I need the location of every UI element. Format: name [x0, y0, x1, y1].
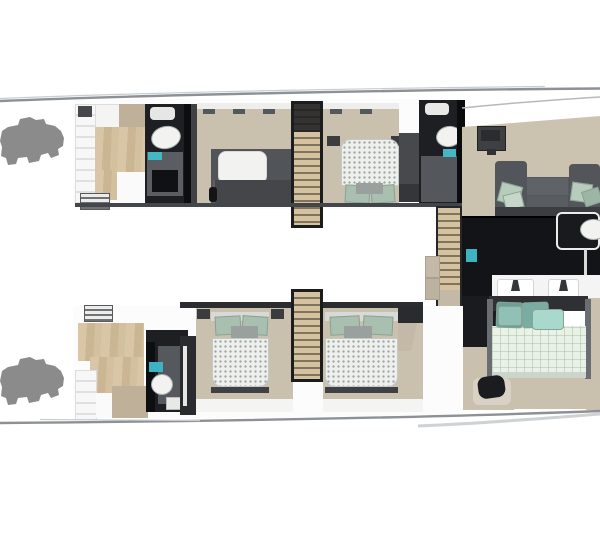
port-vip-bed-mattress: [341, 139, 399, 186]
stbd-aft-hatch-ladder: [84, 305, 113, 322]
port-hull-inner-edge: [75, 203, 463, 207]
master-bed-duvet: [492, 326, 586, 376]
port-guest-settee-cushions: [213, 180, 291, 204]
master-pillow: [532, 309, 564, 330]
port-wardrobe: [399, 133, 420, 202]
port-aft-hatch-ladder: [80, 193, 110, 210]
teal-basin-icon: [149, 362, 163, 372]
folded-blanket: [344, 326, 372, 338]
jetski-silhouette-starboard: [0, 355, 66, 409]
table-pedestal: [584, 249, 587, 277]
master-pillow: [498, 306, 522, 326]
teal-basin-icon: [148, 152, 162, 160]
bottom-rail-lines: [0, 405, 600, 435]
port-aft-bathroom-cabinet: [152, 170, 178, 192]
side-table: [425, 278, 440, 300]
tv-console-inner: [481, 130, 500, 141]
port-aft-cabin-white-area: [117, 172, 147, 202]
folded-blanket: [356, 183, 383, 194]
stbd-aft-cabin-wood-floor: [78, 323, 144, 361]
stbd-bed1-platform: [211, 387, 269, 393]
jetski-silhouette-port: [0, 115, 66, 169]
port-aft-bathroom-wall: [184, 104, 191, 207]
sofa-cushion: [527, 178, 570, 195]
master-bed-footband: [492, 372, 586, 378]
teal-appliance: [466, 249, 477, 262]
nightstand-icon: [197, 309, 210, 319]
lamp-icon: [209, 187, 217, 202]
stbd-bed2-platform: [325, 387, 398, 393]
side-table: [425, 256, 440, 278]
stbd-wardrobe: [398, 306, 423, 323]
stbd-bed1-mattress: [212, 338, 269, 387]
table-oval-top: [580, 219, 600, 240]
folded-blanket: [231, 326, 258, 338]
top-rail-lines: [0, 80, 600, 114]
toilet-icon: [151, 374, 173, 395]
floor-plan-canvas: [0, 0, 600, 540]
nightstand-icon: [271, 309, 284, 319]
teal-basin-icon: [443, 149, 456, 157]
port-fwd-bathroom-floor: [421, 156, 459, 202]
stbd-staircase: [291, 289, 323, 382]
tv-bracket: [487, 149, 496, 155]
stbd-closet-door: [183, 346, 187, 406]
stbd-bed2-mattress: [325, 338, 398, 387]
nightstand-icon: [327, 136, 340, 146]
